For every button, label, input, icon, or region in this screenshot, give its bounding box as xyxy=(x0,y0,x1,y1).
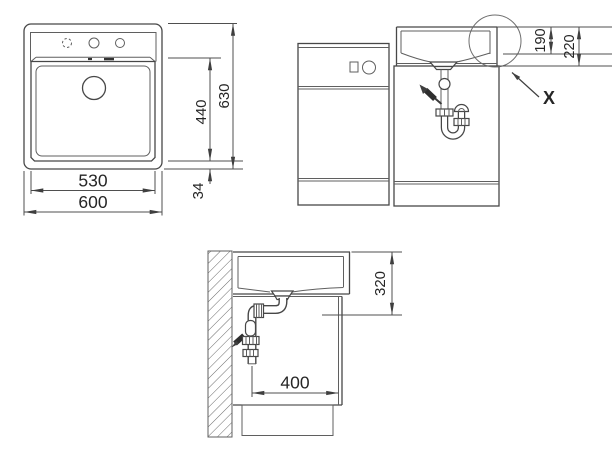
drain-hole-icon xyxy=(83,77,106,100)
dim-label-440: 440 xyxy=(193,99,210,124)
dim-label-220: 220 xyxy=(562,34,578,58)
ribbed-collar-lower xyxy=(243,350,258,357)
bowl-floor-line xyxy=(401,53,490,62)
ribbed-nut-elbow xyxy=(254,304,264,318)
front-extension-lines xyxy=(497,27,612,66)
dim-label-320: 320 xyxy=(372,271,389,296)
dim-600: 600 xyxy=(24,192,162,212)
siphon-front xyxy=(420,62,470,136)
sink-section-side xyxy=(233,252,350,297)
dishwasher-knob-icon xyxy=(363,61,376,74)
dim-630: 630 xyxy=(216,24,233,170)
ribbed-collar-upper xyxy=(243,337,260,345)
bowl-plan xyxy=(31,62,155,162)
dim-440: 440 xyxy=(193,58,210,161)
side-view: 320 400 xyxy=(208,251,402,437)
dim-label-630: 630 xyxy=(216,83,233,108)
front-view: X 190 220 xyxy=(298,15,612,206)
dim-label-600: 600 xyxy=(78,192,107,212)
tap-deck xyxy=(31,33,157,62)
tap-hole-optional-icon xyxy=(63,39,72,48)
dim-400: 400 xyxy=(252,373,339,394)
drain-flange xyxy=(430,62,457,67)
bowl-floor xyxy=(36,66,150,156)
tap-hole-center-icon xyxy=(89,38,99,48)
ribbed-nut-right xyxy=(454,119,469,126)
dim-220: 220 xyxy=(562,27,579,66)
dim-320: 320 xyxy=(372,252,392,315)
wall-section xyxy=(208,251,232,437)
sink-drawing-canvas: 530 600 440 630 34 xyxy=(0,0,615,459)
siphon-side xyxy=(232,291,294,364)
dishwasher-cabinet xyxy=(298,44,389,206)
ribbed-nut-left xyxy=(436,109,453,116)
plinth xyxy=(242,405,333,436)
dim-label-530: 530 xyxy=(78,171,107,191)
drain-flange-side xyxy=(272,291,294,296)
dim-190: 190 xyxy=(533,27,551,54)
dim-label-190: 190 xyxy=(533,28,549,52)
union-nut-icon xyxy=(439,79,450,90)
dim-label-34: 34 xyxy=(190,183,207,200)
plan-view: 530 600 440 630 34 xyxy=(24,24,243,216)
detail-label-x: X xyxy=(543,88,555,108)
overflow-slot xyxy=(104,58,114,60)
cleanout-plug xyxy=(246,321,256,337)
outlet-elbow-cap xyxy=(455,105,469,112)
dim-label-400: 400 xyxy=(280,373,309,393)
dim-530: 530 xyxy=(31,171,155,191)
dim-34: 34 xyxy=(190,169,210,199)
overflow-mark xyxy=(88,58,92,60)
sink-section-front xyxy=(397,27,498,66)
tap-hole-right-icon xyxy=(116,39,125,48)
dishwasher-display-icon xyxy=(350,62,358,72)
sink-rim-outline xyxy=(24,24,162,169)
detail-leader-x: X xyxy=(512,73,555,109)
dishwasher-spigot-icon xyxy=(420,85,442,105)
detail-circle xyxy=(469,15,521,67)
technical-drawing-page: 530 600 440 630 34 xyxy=(0,0,615,459)
